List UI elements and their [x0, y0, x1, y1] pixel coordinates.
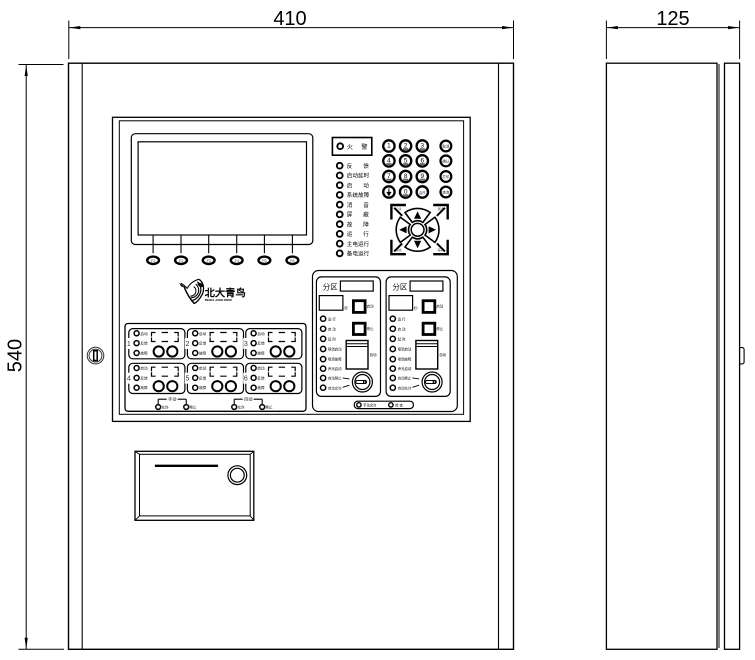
svg-text:故障: 故障 [257, 385, 265, 390]
svg-text:行: 行 [363, 230, 369, 238]
svg-text:反馈: 反馈 [140, 375, 148, 380]
svg-text:F6: F6 [290, 259, 294, 263]
svg-text:备电运行: 备电运行 [347, 250, 370, 258]
svg-text:喷洒启动: 喷洒启动 [398, 347, 412, 352]
svg-text:125: 125 [656, 8, 689, 30]
svg-text:启 动: 启 动 [328, 326, 336, 331]
svg-text:秒: 秒 [344, 305, 348, 311]
svg-text:禁止: 禁止 [189, 405, 197, 410]
svg-text:自动允许: 自动允许 [398, 385, 412, 390]
svg-text:运 行: 运 行 [398, 316, 406, 321]
svg-text:音: 音 [363, 201, 369, 209]
svg-text:启动: 启动 [257, 331, 265, 336]
svg-text:故: 故 [347, 220, 353, 228]
svg-text:反馈: 反馈 [257, 341, 265, 346]
svg-text:自动禁止: 自动禁止 [398, 376, 412, 381]
svg-text:启: 启 [347, 181, 353, 189]
svg-text:联动: 联动 [438, 248, 444, 252]
svg-text:1: 1 [387, 143, 391, 150]
svg-text:确认: 确认 [442, 159, 449, 164]
svg-text:声光启动: 声光启动 [328, 366, 342, 371]
svg-text:启 动: 启 动 [398, 326, 406, 331]
svg-text:分区: 分区 [393, 282, 408, 291]
svg-text:自动: 自动 [439, 352, 447, 357]
svg-text:允许: 允许 [161, 405, 169, 410]
svg-text:故障: 故障 [199, 351, 207, 356]
svg-text:启动: 启动 [367, 304, 374, 309]
svg-text:1: 1 [127, 341, 131, 348]
svg-text:延 时: 延 时 [328, 337, 336, 342]
svg-text:5: 5 [185, 376, 189, 383]
svg-text:消: 消 [347, 201, 353, 209]
svg-text:警: 警 [361, 143, 367, 151]
svg-text:故障: 故障 [199, 385, 207, 390]
svg-text:启动: 启动 [199, 366, 207, 371]
svg-text:启动: 启动 [436, 304, 443, 309]
svg-text:自动允许: 自动允许 [328, 385, 342, 390]
svg-text:F2: F2 [179, 259, 183, 263]
svg-text:运: 运 [347, 230, 353, 238]
svg-text:取消: 取消 [442, 144, 449, 149]
svg-text:反馈: 反馈 [199, 375, 207, 380]
svg-text:自动: 自动 [370, 352, 378, 357]
svg-text:6: 6 [244, 376, 248, 383]
svg-text:喷洒故障: 喷洒故障 [328, 357, 342, 362]
svg-text:启动: 启动 [140, 366, 148, 371]
svg-text:喷洒故障: 喷洒故障 [398, 357, 412, 362]
svg-text:分区: 分区 [323, 282, 338, 291]
svg-text:查询: 查询 [442, 190, 449, 195]
svg-text:F1: F1 [151, 259, 155, 263]
svg-text:540: 540 [4, 339, 26, 372]
svg-text:禁止: 禁止 [265, 405, 273, 410]
svg-text:自动禁止: 自动禁止 [328, 376, 342, 381]
svg-text:启动: 启动 [257, 366, 265, 371]
svg-text:动: 动 [363, 182, 369, 189]
svg-text:故障: 故障 [140, 385, 148, 390]
svg-text:延 时: 延 时 [398, 337, 406, 342]
svg-text:检 查: 检 查 [395, 402, 403, 407]
svg-text:反馈: 反馈 [140, 341, 148, 346]
svg-text:故障: 故障 [257, 351, 265, 356]
svg-text:启动: 启动 [140, 331, 148, 336]
svg-text:410: 410 [273, 8, 306, 30]
svg-text:4: 4 [127, 376, 131, 383]
svg-text:蔽: 蔽 [363, 211, 369, 219]
svg-text:BEIDA JADE BIRD: BEIDA JADE BIRD [205, 298, 233, 302]
svg-text:自动: 自动 [244, 395, 252, 402]
svg-text:3: 3 [244, 341, 248, 348]
svg-text:馈: 馈 [363, 162, 369, 170]
svg-text:障: 障 [363, 220, 369, 228]
svg-text:允许: 允许 [237, 405, 245, 410]
svg-text:手动: 手动 [168, 395, 176, 402]
svg-text:秒: 秒 [414, 305, 418, 311]
svg-text:记录: 记录 [396, 207, 402, 211]
svg-text:火: 火 [347, 144, 353, 151]
svg-text:屏: 屏 [347, 212, 353, 219]
svg-text:启动延时: 启动延时 [347, 172, 370, 180]
svg-text:主电运行: 主电运行 [347, 240, 370, 248]
svg-text:故障: 故障 [140, 351, 148, 356]
svg-text:反馈: 反馈 [199, 341, 207, 346]
svg-text:2: 2 [185, 341, 189, 348]
svg-text:喷洒启动: 喷洒启动 [328, 347, 342, 352]
svg-text:停止: 停止 [367, 326, 374, 331]
svg-text:启停: 启停 [419, 190, 426, 195]
svg-text:反: 反 [347, 162, 353, 170]
svg-text:打印: 打印 [442, 174, 449, 179]
svg-text:启动: 启动 [199, 331, 207, 336]
svg-text:F3: F3 [207, 259, 211, 263]
svg-text:系统故障: 系统故障 [347, 191, 370, 199]
svg-text:手动允许: 手动允许 [363, 402, 377, 407]
svg-text:组态: 组态 [396, 248, 402, 252]
svg-text:测试: 测试 [438, 207, 444, 211]
svg-text:运 行: 运 行 [328, 316, 336, 321]
svg-text:停止: 停止 [436, 326, 443, 331]
svg-text:F5: F5 [262, 259, 266, 263]
svg-text:反馈: 反馈 [257, 375, 265, 380]
svg-text:F4: F4 [235, 259, 239, 263]
svg-text:声光启动: 声光启动 [398, 366, 412, 371]
